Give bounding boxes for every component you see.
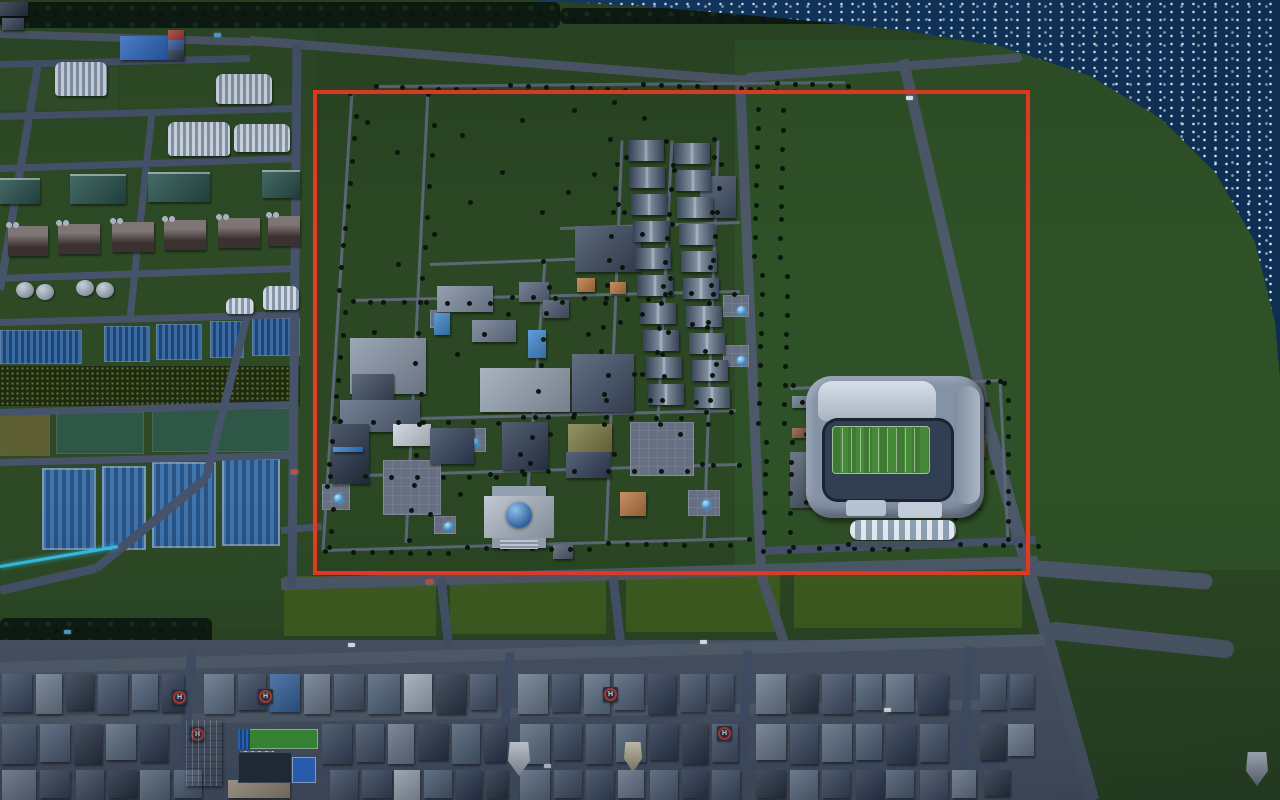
school-yard <box>238 752 292 783</box>
school-sports-field <box>238 729 318 749</box>
dome-steps <box>500 540 538 549</box>
landmarks-layer <box>0 0 1280 800</box>
stadium-pitch <box>832 426 930 474</box>
stadium-south-stand <box>846 500 886 516</box>
school-bleachers <box>238 729 250 749</box>
campus-dome-building <box>484 486 554 552</box>
stadium-south-stand-2 <box>898 502 942 518</box>
train-station <box>850 520 956 547</box>
station-platform <box>852 541 952 547</box>
stadium-yard-lines <box>842 428 920 472</box>
stadium-east-stand <box>954 386 980 504</box>
dome-roof <box>506 502 532 528</box>
game-viewport[interactable]: HHHHH <box>0 0 1280 800</box>
glass-office-tower <box>186 720 222 786</box>
stadium-north-roof <box>818 381 936 421</box>
school-court <box>292 757 316 783</box>
station-hall <box>850 520 956 540</box>
school-block <box>238 729 318 783</box>
stadium <box>806 376 984 518</box>
